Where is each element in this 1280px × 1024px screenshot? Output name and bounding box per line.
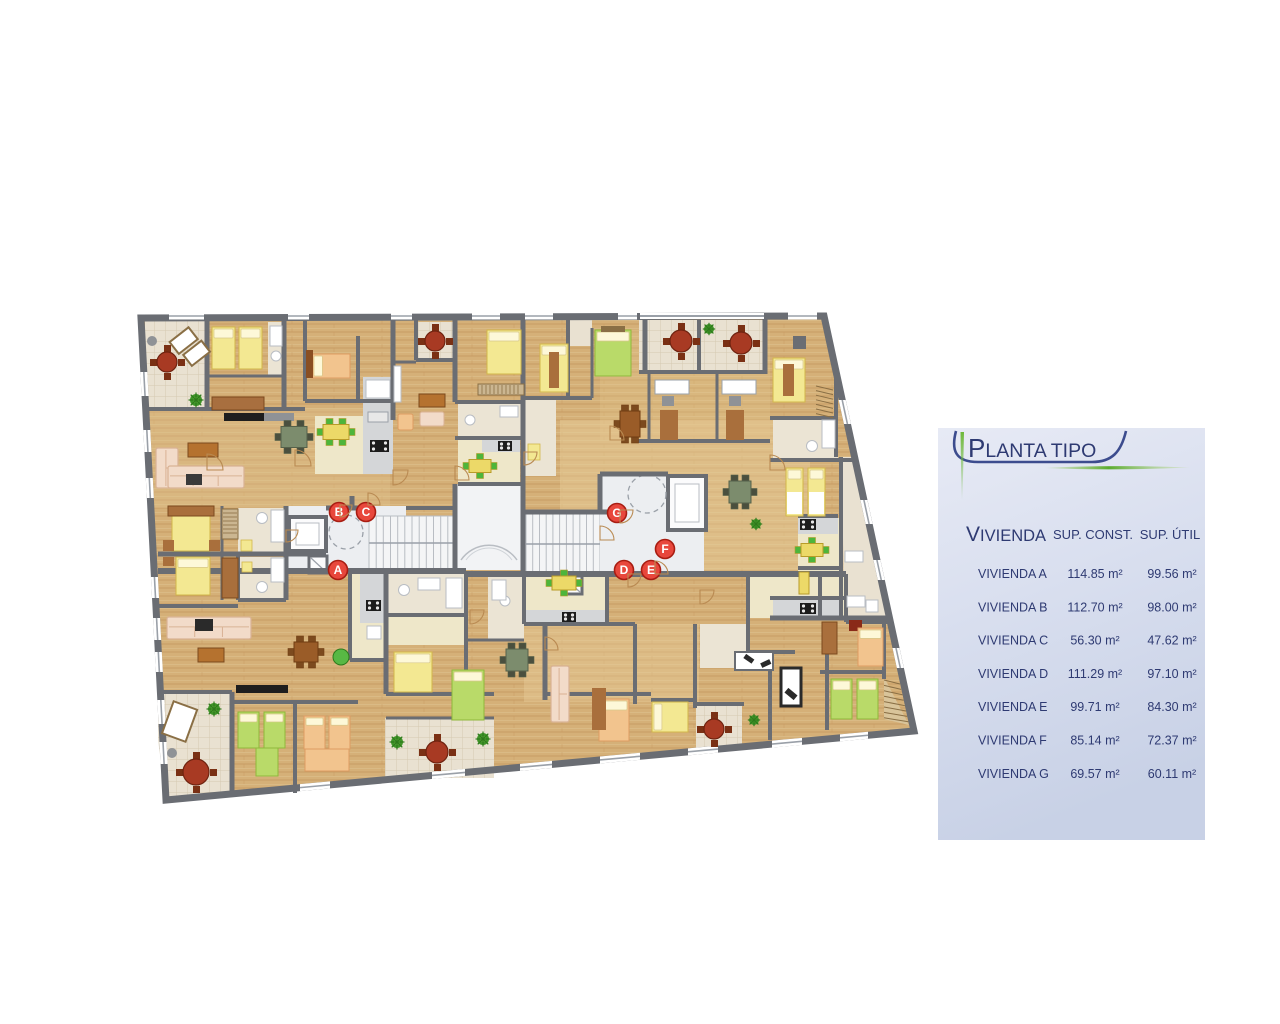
svg-text:VIVIENDA E: VIVIENDA E <box>978 700 1047 714</box>
svg-text:VIVIENDA D: VIVIENDA D <box>978 667 1048 681</box>
svg-text:69.57 m²: 69.57 m² <box>1070 767 1119 781</box>
svg-text:VIVIENDA G: VIVIENDA G <box>978 767 1049 781</box>
svg-text:F: F <box>661 542 668 556</box>
svg-text:SUP. ÚTIL: SUP. ÚTIL <box>1140 527 1200 542</box>
svg-text:VIVIENDA F: VIVIENDA F <box>978 734 1047 748</box>
svg-text:A: A <box>334 563 343 577</box>
svg-text:D: D <box>620 563 629 577</box>
svg-text:SUP. CONST.: SUP. CONST. <box>1053 527 1133 542</box>
svg-text:VIVIENDA: VIVIENDA <box>966 523 1046 546</box>
svg-text:C: C <box>362 505 371 519</box>
svg-text:112.70 m²: 112.70 m² <box>1067 600 1122 614</box>
svg-text:72.37 m²: 72.37 m² <box>1147 734 1196 748</box>
svg-text:56.30 m²: 56.30 m² <box>1070 634 1119 648</box>
svg-text:111.29 m²: 111.29 m² <box>1068 667 1122 681</box>
svg-text:98.00 m²: 98.00 m² <box>1147 600 1196 614</box>
svg-text:VIVIENDA C: VIVIENDA C <box>978 634 1048 648</box>
svg-text:97.10 m²: 97.10 m² <box>1147 667 1196 681</box>
svg-text:85.14 m²: 85.14 m² <box>1070 734 1119 748</box>
svg-text:VIVIENDA A: VIVIENDA A <box>978 567 1047 581</box>
svg-text:E: E <box>647 563 655 577</box>
svg-text:99.56 m²: 99.56 m² <box>1147 567 1196 581</box>
svg-text:VIVIENDA B: VIVIENDA B <box>978 600 1047 614</box>
svg-text:99.71 m²: 99.71 m² <box>1070 700 1119 714</box>
svg-text:114.85 m²: 114.85 m² <box>1067 567 1122 581</box>
svg-text:84.30 m²: 84.30 m² <box>1147 700 1196 714</box>
svg-text:60.11 m²: 60.11 m² <box>1148 767 1196 781</box>
svg-text:47.62 m²: 47.62 m² <box>1147 634 1196 648</box>
